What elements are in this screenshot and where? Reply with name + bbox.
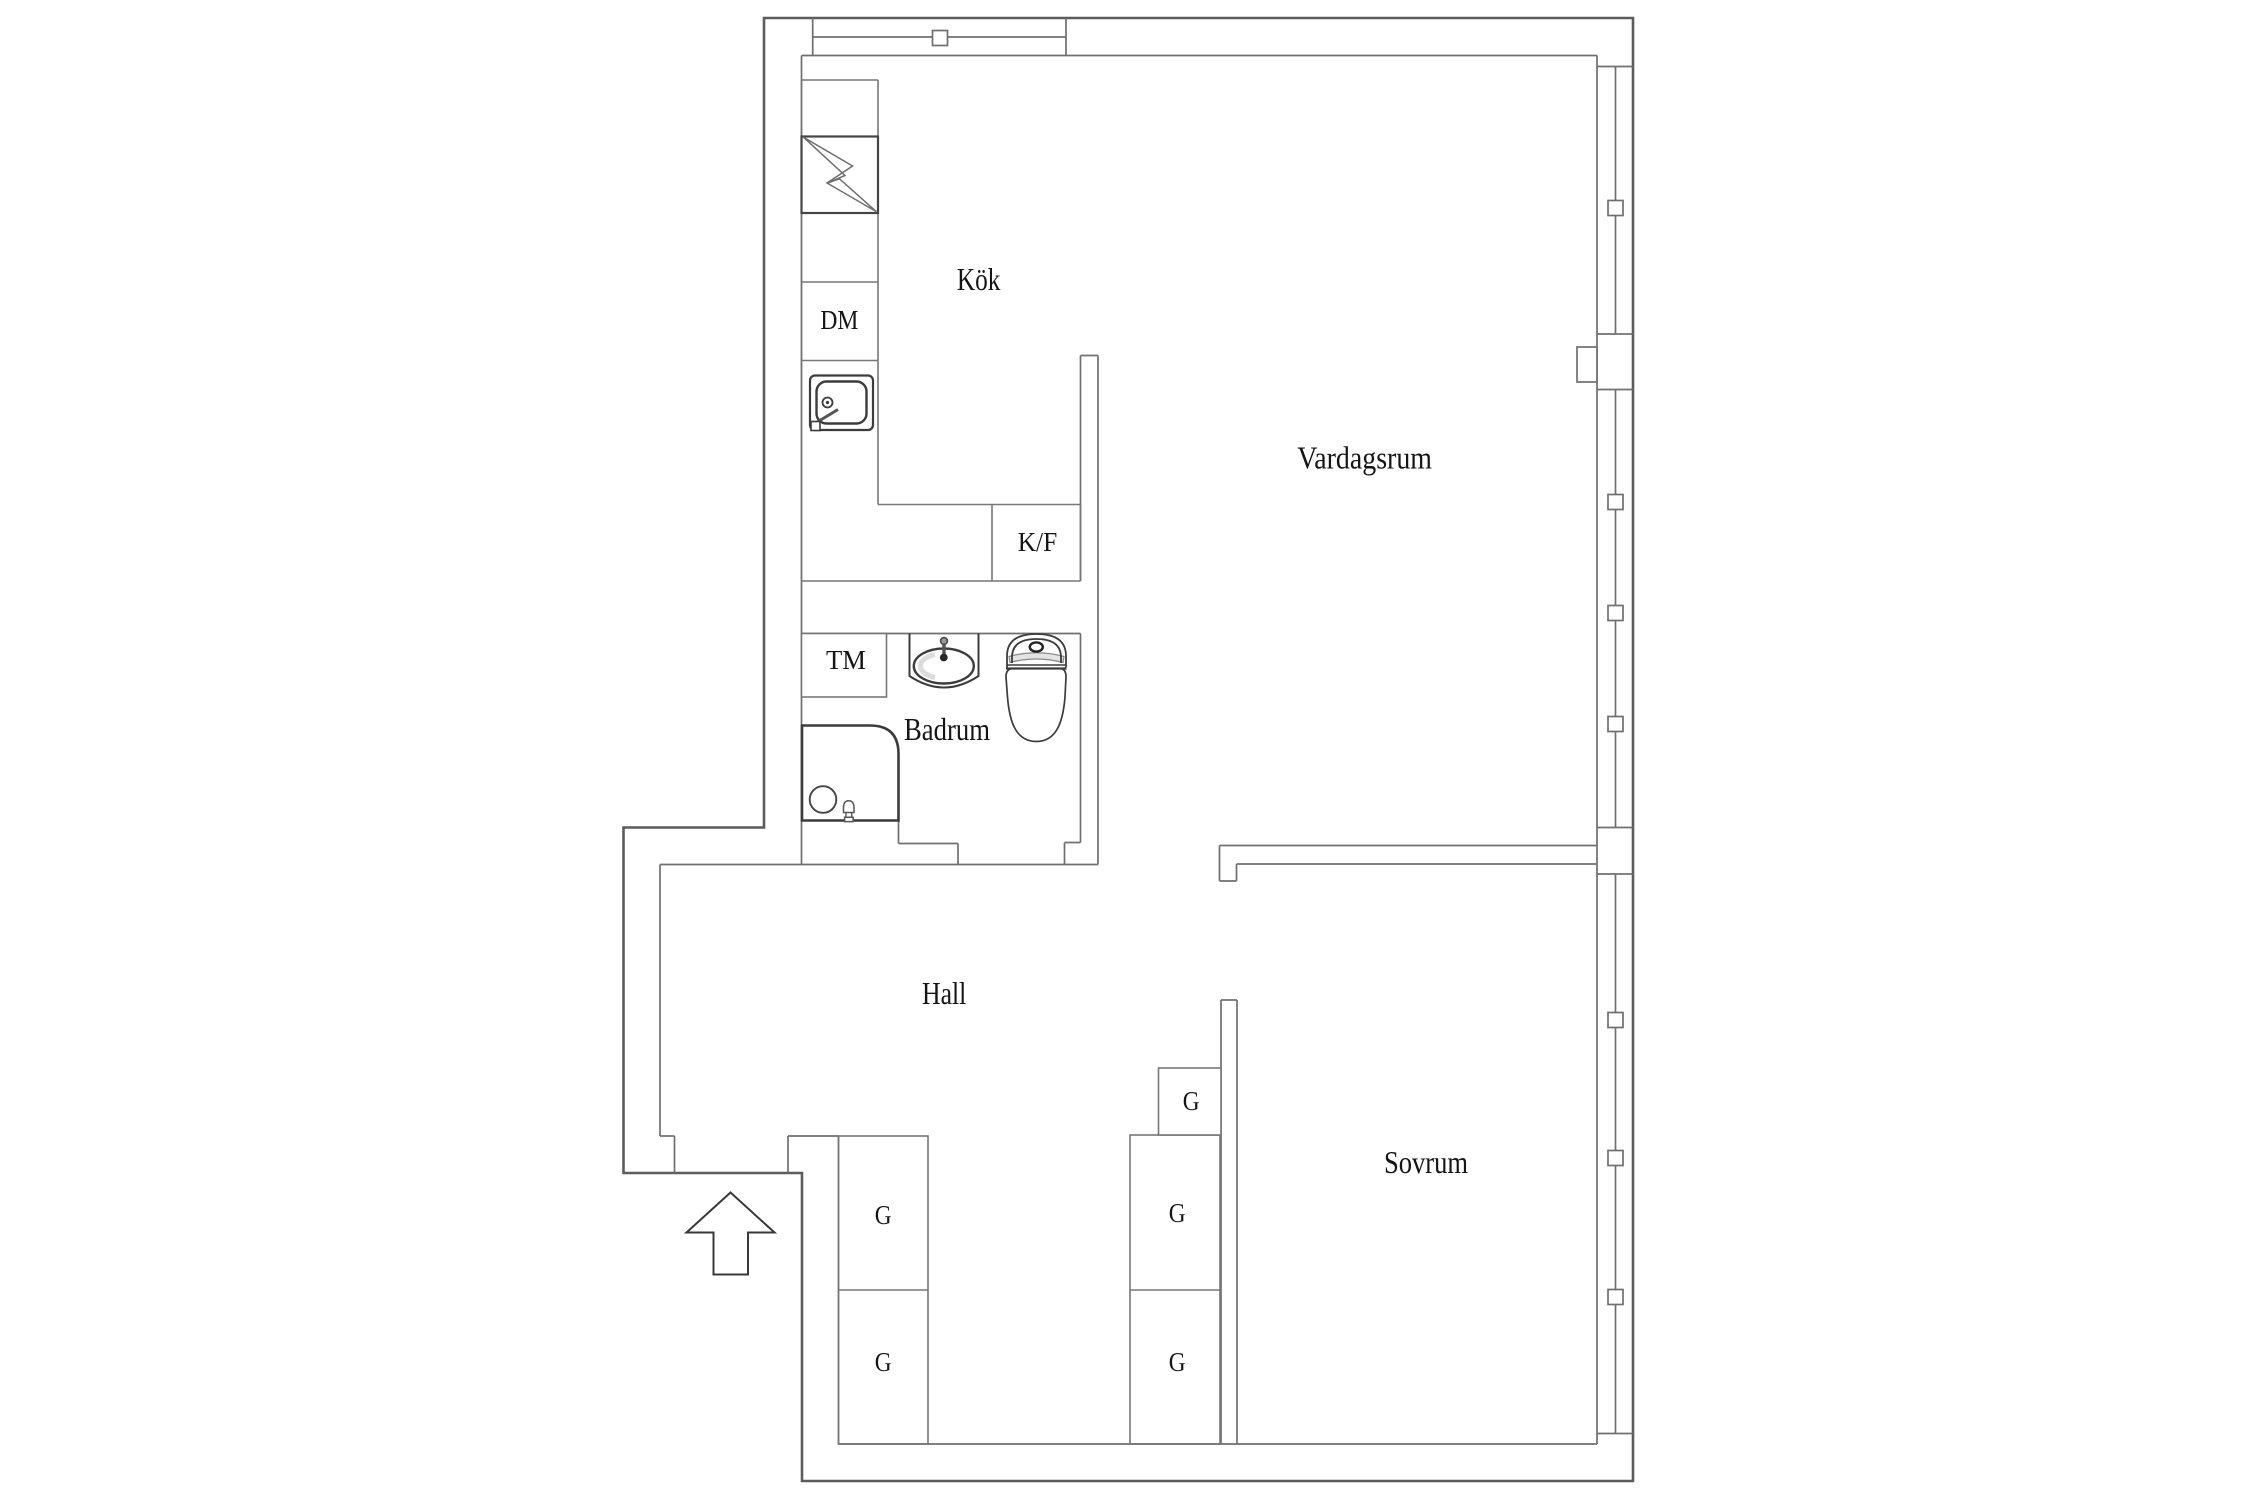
svg-text:G: G [1183, 1086, 1200, 1116]
svg-text:G: G [875, 1200, 892, 1230]
svg-text:TM: TM [826, 645, 866, 675]
svg-text:Hall: Hall [922, 975, 966, 1011]
svg-text:Sovrum: Sovrum [1384, 1144, 1468, 1180]
svg-text:G: G [1169, 1198, 1186, 1228]
svg-text:K/F: K/F [1018, 527, 1058, 557]
svg-text:Badrum: Badrum [904, 711, 990, 747]
svg-text:G: G [1169, 1347, 1186, 1377]
svg-text:G: G [875, 1347, 892, 1377]
svg-text:Kök: Kök [957, 261, 1001, 297]
svg-text:Vardagsrum: Vardagsrum [1297, 439, 1432, 475]
svg-text:DM: DM [820, 305, 858, 335]
